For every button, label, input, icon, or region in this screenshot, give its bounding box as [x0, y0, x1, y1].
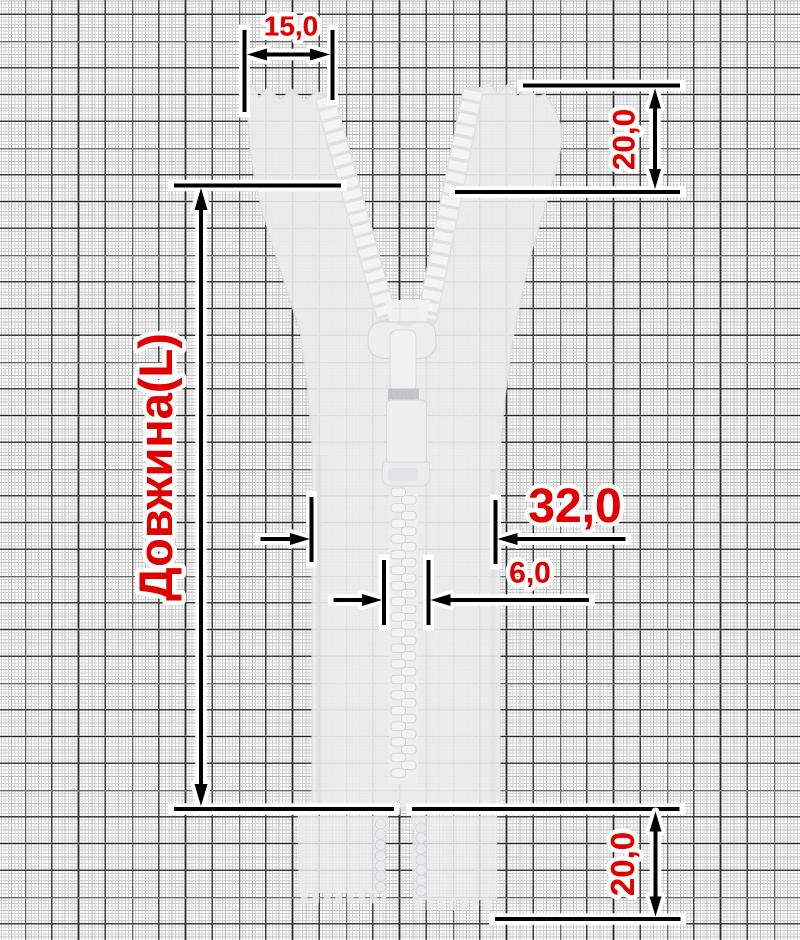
svg-text:20,0: 20,0: [604, 832, 641, 896]
svg-text:32,0: 32,0: [528, 480, 621, 533]
svg-text:20,0: 20,0: [606, 109, 642, 170]
svg-text:6,0: 6,0: [509, 557, 551, 590]
svg-text:Довжина(L): Довжина(L): [129, 333, 182, 601]
svg-text:15,0: 15,0: [264, 11, 319, 42]
